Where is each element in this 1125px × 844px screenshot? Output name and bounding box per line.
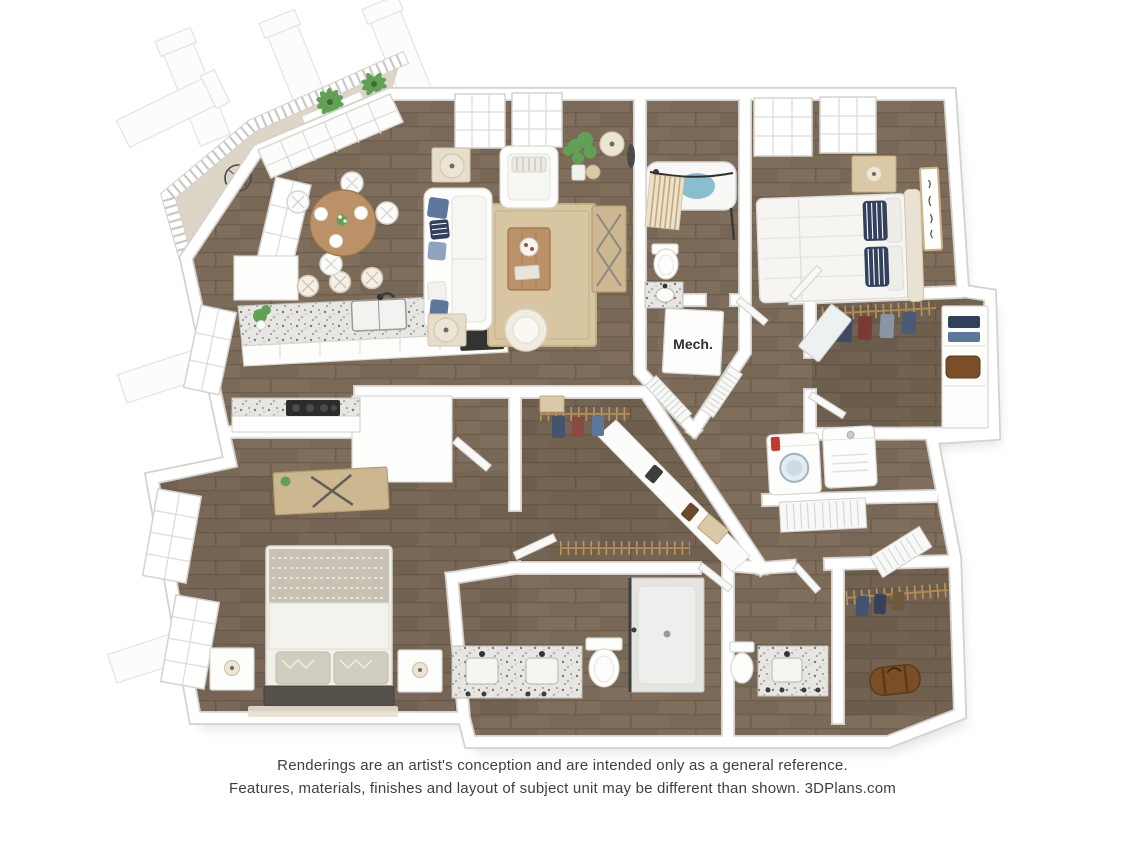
detergent-bottle (771, 437, 781, 451)
bedroom-1-window (754, 98, 812, 156)
toilet (730, 642, 754, 683)
travel-bag (946, 356, 980, 378)
floor-lamp (440, 154, 464, 178)
folded-clothes (948, 332, 980, 342)
double-vanity (452, 646, 582, 698)
storage-box (540, 396, 564, 412)
floor-lamp (434, 318, 458, 342)
coffee-table (508, 228, 550, 290)
pillow (334, 652, 388, 684)
disclaimer-line-1: Renderings are an artist's conception an… (0, 754, 1125, 777)
refrigerator (234, 256, 298, 300)
dryer (822, 426, 877, 489)
striped-pillow (864, 246, 889, 287)
desk (273, 467, 389, 515)
hanging-clothes (857, 316, 872, 341)
hanging-clothes (901, 312, 916, 335)
nightstand (210, 648, 254, 690)
hanging-clothes (855, 596, 869, 617)
pillow (276, 652, 330, 684)
headboard (264, 686, 394, 706)
bed-queen (756, 189, 924, 307)
media-console (592, 206, 626, 292)
disclaimer-line-2: Features, materials, finishes and layout… (0, 777, 1125, 800)
walk-in-shower (630, 578, 704, 692)
floor-lamp (600, 132, 624, 156)
shower-drain (664, 631, 671, 638)
dining-chair (376, 202, 398, 224)
runner-rug (248, 706, 398, 717)
floor-plan-page: Mech. (0, 0, 1125, 844)
hanging-clothes (592, 416, 604, 436)
bed-full (264, 546, 394, 706)
hanging-clothes (873, 594, 886, 615)
disclaimer: Renderings are an artist's conception an… (0, 754, 1125, 800)
mech-room-label: Mech. (673, 336, 713, 352)
dining-chair (287, 191, 309, 213)
folded-blanket (269, 603, 389, 649)
folded-clothes (948, 316, 980, 328)
sofa (424, 188, 492, 330)
nightstand (398, 650, 442, 692)
bathroom-vanity (645, 282, 683, 308)
louvered-linen-doors (779, 498, 866, 532)
shower-curtain (645, 174, 684, 229)
hanging-clothes (892, 592, 905, 611)
hanging-clothes (572, 417, 584, 437)
living-window (512, 93, 562, 147)
washer (767, 433, 822, 496)
accent-chair (505, 309, 547, 351)
nightstand (852, 156, 896, 192)
duffel-bag (869, 663, 922, 696)
patterned-duvet (269, 549, 389, 603)
bedroom-1-window (820, 97, 876, 153)
vanity (758, 646, 828, 696)
wall-mirror (627, 144, 635, 168)
hanging-clothes (552, 416, 565, 438)
dining-table (310, 190, 376, 256)
armchair (500, 146, 558, 208)
hanging-clothes (879, 314, 894, 339)
floor-plan-rendering: Mech. (0, 0, 1125, 844)
living-window (455, 94, 505, 148)
wall-sign (920, 168, 942, 251)
striped-pillow (862, 200, 887, 241)
cooktop (286, 400, 340, 416)
